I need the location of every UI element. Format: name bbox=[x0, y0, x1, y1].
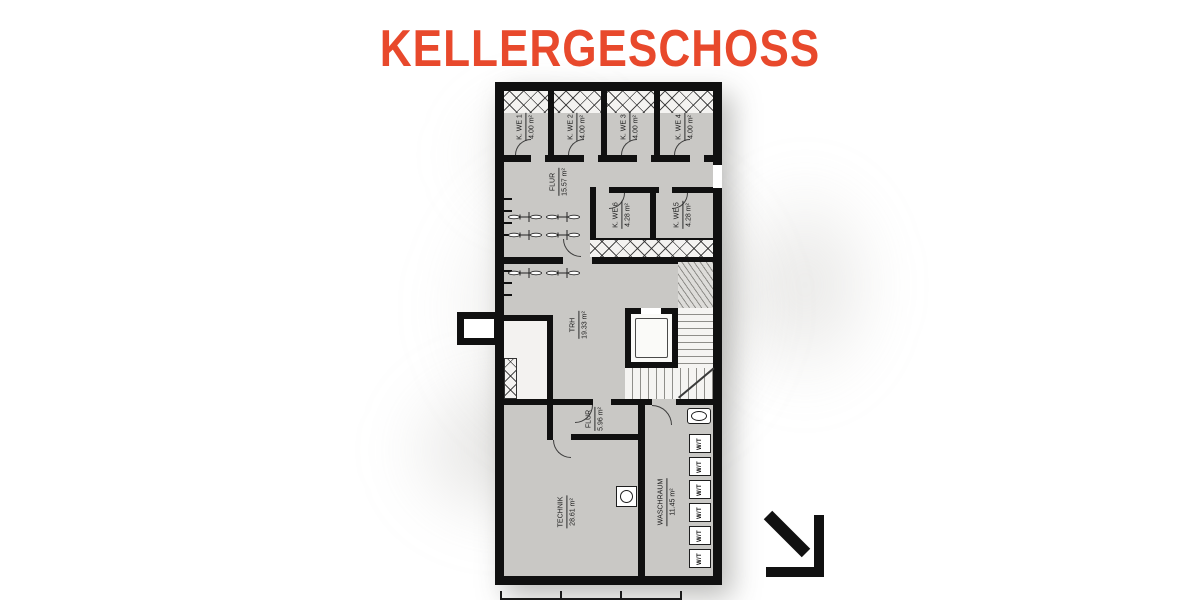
bicycle-icon bbox=[507, 228, 543, 246]
page-title: KELLERGESCHOSS bbox=[380, 18, 820, 78]
boiler-icon bbox=[616, 486, 637, 507]
door-gap bbox=[584, 155, 598, 162]
wall-segment bbox=[590, 187, 596, 240]
stairs bbox=[625, 368, 713, 399]
boiler-drum bbox=[620, 490, 633, 503]
washer-dryer-box: W/T bbox=[689, 457, 711, 476]
sink-icon bbox=[687, 408, 711, 424]
wall-segment bbox=[654, 91, 660, 162]
elevator-car bbox=[635, 318, 668, 358]
bicycle-icon bbox=[507, 210, 543, 228]
wall-segment bbox=[601, 91, 607, 162]
washer-dryer-box: W/T bbox=[689, 549, 711, 568]
bicycle-icon bbox=[545, 266, 581, 284]
room-label-flur-lower: FLUR 5.96 m² bbox=[584, 407, 605, 431]
washer-dryer-box: W/T bbox=[689, 503, 711, 522]
stairs bbox=[678, 308, 713, 368]
washer-dryer-box: W/T bbox=[689, 434, 711, 453]
window-well-hatch bbox=[504, 358, 517, 399]
room-label-kwe3: K. WE 3 4.00 m² bbox=[619, 113, 640, 141]
stair-ramp-hatch bbox=[678, 262, 713, 308]
wall-segment bbox=[504, 315, 553, 321]
room-label-kwe6: K. WE 6 4.28 m² bbox=[611, 201, 632, 229]
door-gap bbox=[637, 155, 651, 162]
window-well-hatch bbox=[590, 240, 713, 257]
room-label-flur-upper: FLUR 15.57 m² bbox=[548, 168, 569, 196]
bicycle-icon bbox=[545, 210, 581, 228]
wall-segment bbox=[548, 91, 554, 162]
direction-arrow-icon bbox=[758, 503, 832, 588]
window-opening bbox=[713, 165, 722, 188]
exterior-light-shaft bbox=[457, 312, 501, 345]
dimension-tick bbox=[504, 294, 512, 296]
room-label-technik: TECHNIK 28.61 m² bbox=[556, 496, 577, 529]
window-well-hatch bbox=[504, 91, 713, 113]
door-gap bbox=[596, 187, 609, 193]
washer-dryer-box: W/T bbox=[689, 526, 711, 545]
floor-plan: K. WE 1 4.00 m² K. WE 2 4.00 m² K. WE 3 … bbox=[495, 82, 722, 585]
sink-basin bbox=[691, 411, 707, 421]
room-label-kwe4: K. WE 4 4.00 m² bbox=[674, 113, 695, 141]
watercolor-backdrop bbox=[690, 130, 920, 440]
elevator bbox=[625, 308, 678, 368]
wall-segment bbox=[638, 405, 645, 576]
door-gap bbox=[652, 399, 676, 405]
elevator-door-gap bbox=[641, 308, 661, 314]
wall-segment bbox=[547, 315, 553, 405]
room-label-kwe5: K. WE 5 4.28 m² bbox=[672, 201, 693, 229]
bicycle-icon bbox=[507, 266, 543, 284]
door-gap bbox=[593, 399, 611, 405]
room-label-kwe1: K. WE 1 4.00 m² bbox=[515, 113, 536, 141]
washer-dryer-box: W/T bbox=[689, 480, 711, 499]
bicycle-icon bbox=[545, 228, 581, 246]
room-label-trh: TRH 19.33 m² bbox=[568, 311, 589, 339]
door-gap bbox=[531, 155, 545, 162]
door-gap bbox=[690, 155, 704, 162]
room-label-waschraum: WASCHRAUM 11.45 m² bbox=[656, 478, 677, 526]
room-label-kwe2: K. WE 2 4.00 m² bbox=[566, 113, 587, 141]
door-gap bbox=[659, 187, 672, 193]
dimension-tick bbox=[504, 198, 512, 200]
wall-segment bbox=[504, 257, 563, 264]
